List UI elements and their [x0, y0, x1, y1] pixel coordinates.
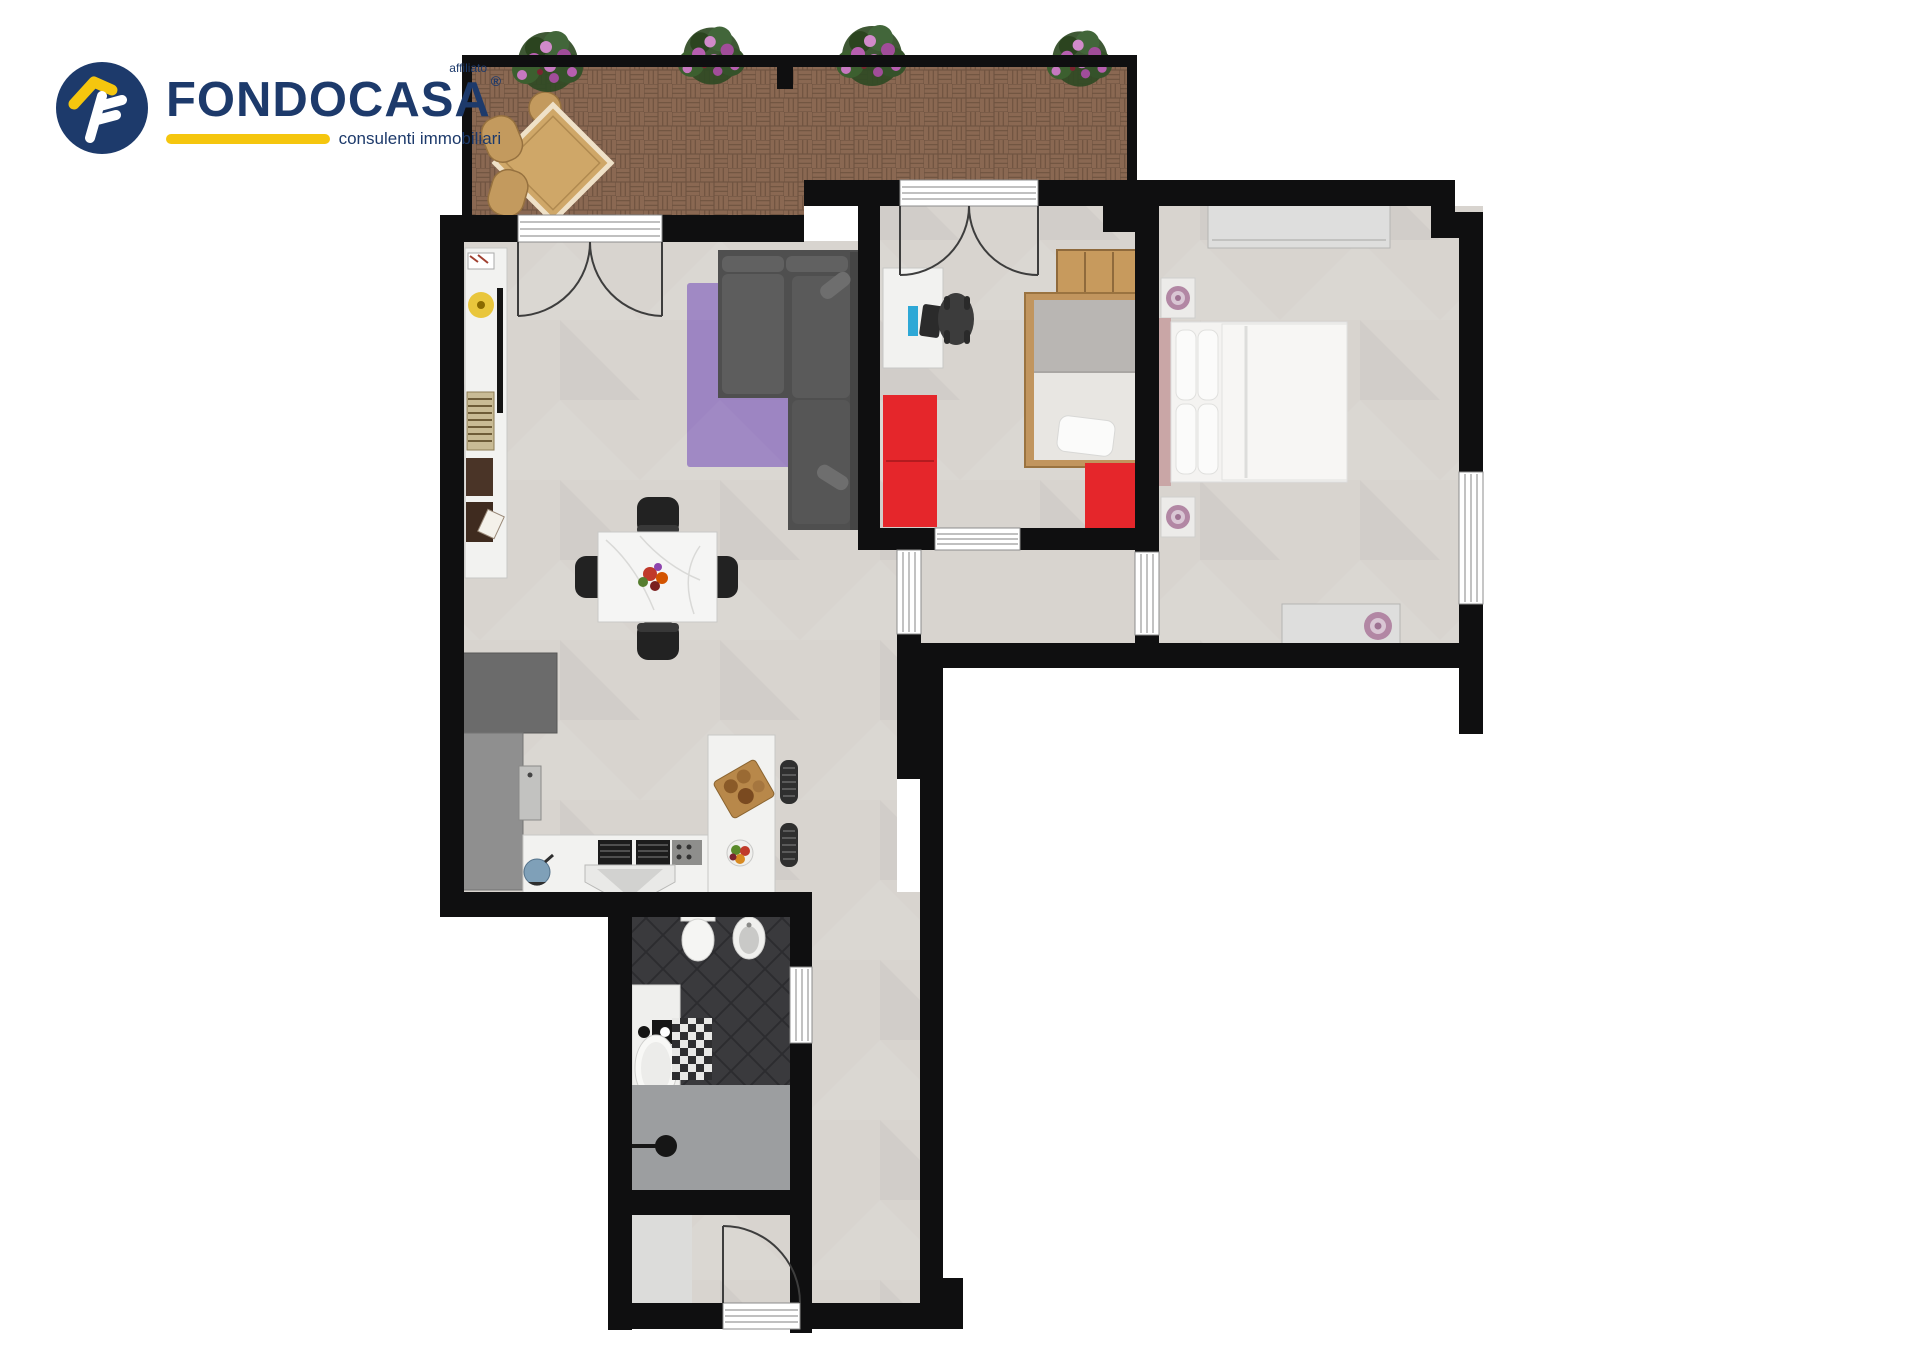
bedroom-window: [1459, 472, 1483, 604]
storage-box: [466, 458, 493, 496]
study-window: [935, 528, 1020, 550]
logo-tagline: consulenti immobiliari: [339, 129, 502, 149]
sofa-back-cushion: [786, 256, 848, 272]
bathroom-right-wall: [790, 917, 812, 967]
logo-affiliato-label: affiliato: [449, 62, 487, 74]
bar-stool: [780, 823, 798, 867]
picture-frame: [468, 253, 494, 269]
sofa-back-cushion: [722, 256, 784, 272]
kitchen-tall-cabinet: [463, 733, 523, 890]
living-top-wall: [662, 215, 804, 242]
bath-faucet: [638, 1026, 650, 1038]
corridor-door-living: [897, 550, 921, 634]
entry-bottom-wall: [608, 1303, 723, 1329]
terrace-wall-stub: [777, 55, 793, 89]
sofa-seat-cushion: [792, 400, 850, 524]
logo-circle-icon: [52, 58, 152, 158]
logo-brand-name: FONDOCASA: [166, 73, 491, 127]
bedroom-right-wall-stub: [1459, 604, 1483, 734]
hall-right-wall: [920, 668, 943, 1304]
pillow: [1198, 404, 1218, 474]
bathroom-left-wall: [608, 915, 632, 1330]
floorplan-page: affiliatoFONDOCASA® consulenti immobilia…: [0, 0, 1920, 1358]
corridor-door-bedroom: [1135, 552, 1159, 635]
toilet: [682, 919, 714, 961]
entry-mat: [632, 1215, 692, 1303]
cooktop: [598, 840, 702, 865]
logo-yellow-bar: [166, 134, 330, 144]
bedroom-right-wall: [1459, 212, 1483, 472]
soap: [660, 1027, 670, 1037]
shower-area: [632, 1085, 790, 1190]
bathroom-sliding-door: [790, 967, 812, 1043]
corner-wall-block: [1103, 206, 1159, 232]
yellow-bowl-center: [477, 301, 485, 309]
logo-text-block: affiliatoFONDOCASA® consulenti immobilia…: [166, 58, 501, 149]
pillow: [1176, 404, 1196, 474]
nightstand-with-lamp: [1161, 278, 1195, 318]
fridge-unit: [463, 653, 557, 733]
study-top-wall: [1038, 180, 1135, 206]
tv: [497, 288, 503, 413]
fruit-bowl: [727, 840, 753, 866]
bottom-exterior-wall: [920, 643, 1483, 668]
desk-chair: [938, 293, 974, 345]
bed-duvet: [1222, 324, 1347, 480]
bidet-tap: [747, 923, 752, 928]
sofa-chaise-cushion: [722, 274, 784, 394]
bidet-basin: [739, 926, 759, 954]
left-exterior-wall: [440, 215, 464, 917]
corridor-floor: [897, 550, 1159, 643]
bar-stool: [780, 760, 798, 804]
checker-mat: [672, 1018, 712, 1080]
logo-brand-row: affiliatoFONDOCASA®: [166, 76, 501, 125]
entry-bottom-wall: [800, 1303, 963, 1329]
study-bottom-wall: [858, 528, 935, 550]
bed-headboard: [1159, 318, 1171, 486]
dining-chair: [637, 497, 679, 535]
hall-right-wall: [897, 634, 921, 779]
floorplan-drawing: [0, 0, 1920, 1358]
fondocasa-logo-icon: [52, 58, 152, 158]
terrace-top-wall: [462, 55, 1137, 67]
fondocasa-logo: affiliatoFONDOCASA® consulenti immobilia…: [52, 58, 501, 158]
single-bed: [1025, 293, 1145, 467]
shower-head-icon: [655, 1135, 677, 1157]
dresser-lamp-center: [1375, 623, 1382, 630]
bathroom-right-wall: [790, 1043, 812, 1333]
logo-registered-mark: ®: [491, 73, 501, 89]
magazine-rack-slats: [468, 399, 492, 441]
logo-tagline-row: consulenti immobiliari: [166, 129, 501, 149]
double-bed: [1159, 318, 1347, 486]
nightstand-with-lamp: [1161, 497, 1195, 537]
kitchen-bottom-wall: [440, 892, 812, 917]
terrace-right-wall: [1127, 55, 1137, 185]
pillow: [1176, 330, 1196, 400]
oven-knob: [528, 773, 533, 778]
computer-monitor: [908, 306, 918, 336]
wall-shelf: [1057, 250, 1141, 298]
bathroom-bottom-wall: [608, 1190, 812, 1215]
bedroom-top-wall: [1135, 180, 1431, 206]
pillow: [1198, 330, 1218, 400]
study-top-wall: [804, 180, 900, 206]
study-left-wall: [858, 206, 880, 550]
dining-chair: [637, 622, 679, 660]
